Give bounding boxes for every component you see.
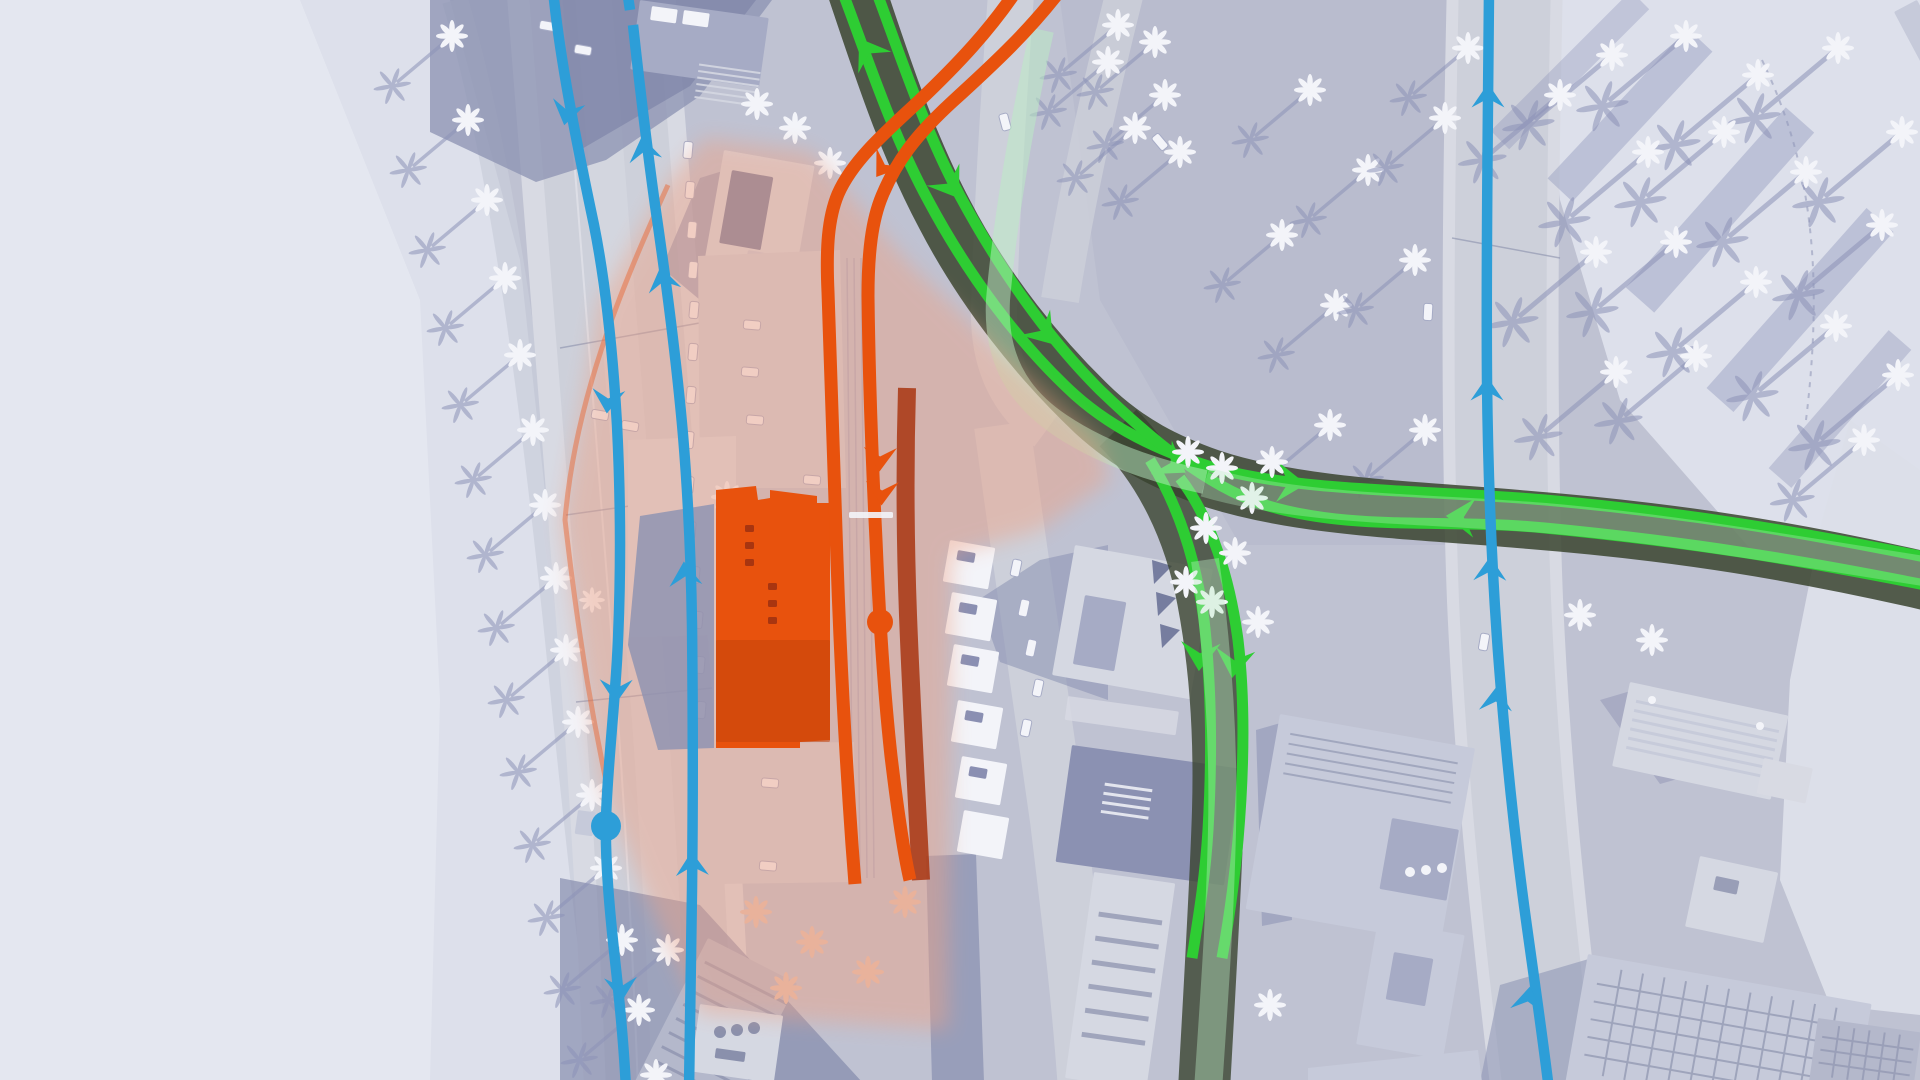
tree: [1740, 266, 1772, 298]
tree: [1820, 310, 1852, 342]
vent-dot[interactable]: [1405, 867, 1415, 877]
tree: [1219, 537, 1251, 569]
tree: [1399, 244, 1431, 276]
office-courtyard[interactable]: [1379, 818, 1458, 901]
tree: [1660, 226, 1692, 258]
tree: [1320, 289, 1352, 321]
tree: [852, 956, 884, 988]
house-row[interactable]: [945, 592, 998, 641]
tree: [452, 104, 484, 136]
tree: [1680, 340, 1712, 372]
map-layers: [0, 0, 1920, 1080]
tree: [1242, 606, 1274, 638]
tree: [1632, 136, 1664, 168]
tree: [1164, 136, 1196, 168]
tree: [504, 339, 536, 371]
vent-dot[interactable]: [1437, 863, 1447, 873]
tree: [1742, 59, 1774, 91]
tree: [1886, 116, 1918, 148]
station-roof-shade[interactable]: [716, 640, 830, 742]
tree: [796, 926, 828, 958]
tree: [1866, 209, 1898, 241]
vent-dot[interactable]: [731, 1024, 743, 1036]
station-window[interactable]: [768, 583, 777, 590]
blue-route-east-stub[interactable]: [627, 0, 630, 10]
orange-route-stop[interactable]: [867, 609, 893, 635]
chimney[interactable]: [1648, 696, 1656, 704]
tree: [1600, 356, 1632, 388]
tree: [1102, 9, 1134, 41]
house-row[interactable]: [957, 810, 1010, 859]
tree: [1636, 624, 1668, 656]
tree: [1314, 409, 1346, 441]
station-window[interactable]: [768, 600, 777, 607]
station-window[interactable]: [745, 559, 754, 566]
tree: [740, 896, 772, 928]
tree: [1564, 599, 1596, 631]
station-window[interactable]: [745, 525, 754, 532]
game-viewport[interactable]: city-simulation transport route overlay …: [0, 0, 1920, 1080]
tree: [562, 706, 594, 738]
tree: [1119, 112, 1151, 144]
tree: [1670, 20, 1702, 52]
tree: [1139, 26, 1171, 58]
tree: [1790, 156, 1822, 188]
blue-route-stop[interactable]: [591, 811, 621, 841]
tree: [741, 88, 773, 120]
tree: [779, 112, 811, 144]
station-window[interactable]: [768, 617, 777, 624]
tree: [1848, 424, 1880, 456]
tree: [1149, 79, 1181, 111]
tree: [1822, 32, 1854, 64]
tree: [550, 634, 582, 666]
vent-dot[interactable]: [1421, 865, 1431, 875]
tree: [471, 184, 503, 216]
tree: [1092, 46, 1124, 78]
station-window[interactable]: [745, 542, 754, 549]
chimney[interactable]: [1756, 722, 1764, 730]
platform-crossing[interactable]: [849, 512, 893, 518]
tree: [889, 886, 921, 918]
house-row[interactable]: [955, 756, 1008, 805]
tree: [1266, 219, 1298, 251]
tree: [517, 414, 549, 446]
tree: [1708, 116, 1740, 148]
car: [1423, 303, 1433, 320]
tree: [529, 489, 561, 521]
vent-dot[interactable]: [748, 1022, 760, 1034]
house-row[interactable]: [947, 644, 1000, 693]
tree: [1596, 39, 1628, 71]
tree: [770, 972, 802, 1004]
tree: [1580, 236, 1612, 268]
tree: [436, 20, 468, 52]
tree: [1544, 79, 1576, 111]
tree: [1294, 74, 1326, 106]
tree: [1190, 512, 1222, 544]
tree: [1254, 989, 1286, 1021]
tree: [623, 994, 655, 1026]
tree: [1882, 359, 1914, 391]
tree: [1409, 414, 1441, 446]
tree: [1452, 32, 1484, 64]
tree: [1256, 446, 1288, 478]
office-2-court[interactable]: [1386, 952, 1434, 1006]
house-row[interactable]: [951, 700, 1004, 749]
route-overlay-map[interactable]: [0, 0, 1920, 1080]
vent-dot[interactable]: [714, 1026, 726, 1038]
tree: [1429, 102, 1461, 134]
tree: [489, 262, 521, 294]
tree: [540, 562, 572, 594]
